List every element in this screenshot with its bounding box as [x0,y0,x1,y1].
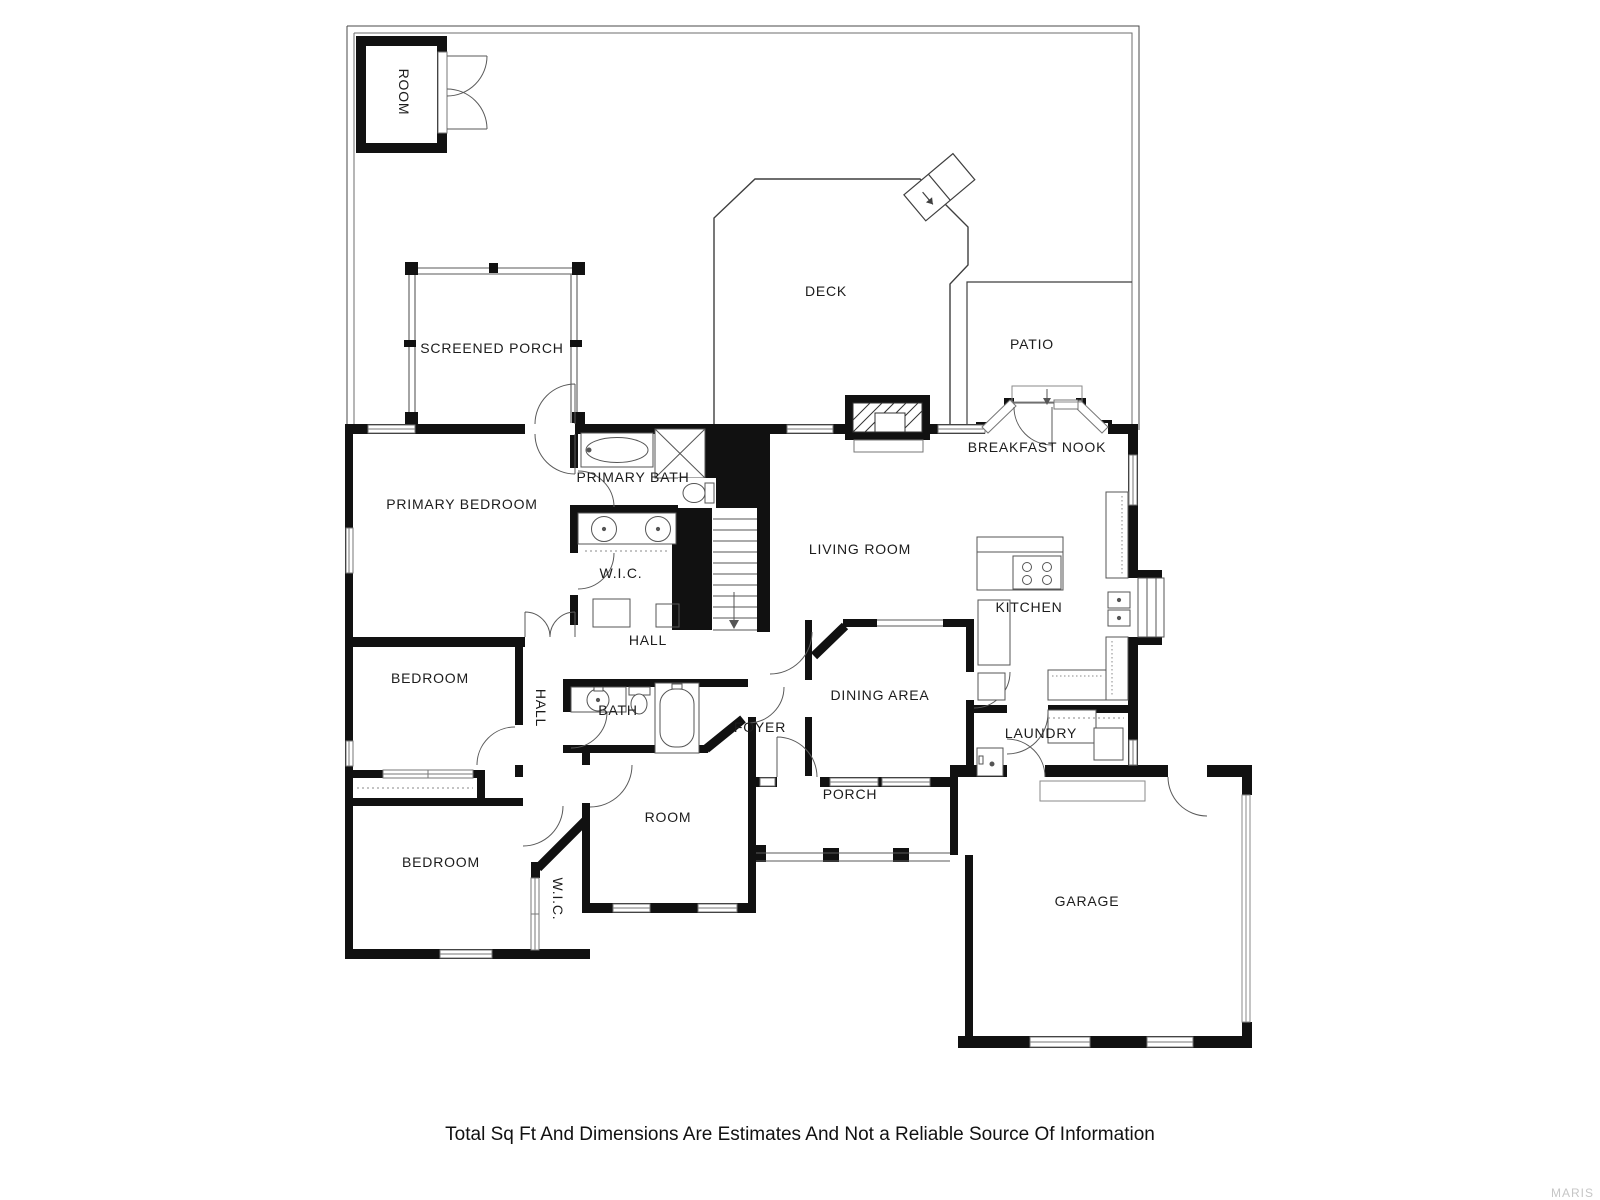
bedroom-mid-door [477,727,515,765]
label-living-room: LIVING ROOM [809,541,911,557]
label-bath: BATH [598,702,638,718]
porch-edge [756,853,950,861]
label-hall-upper: HALL [629,632,667,648]
label-dining-area: DINING AREA [830,687,929,703]
label-patio: PATIO [1010,336,1054,352]
dining-opening-header [877,620,943,626]
label-primary-bedroom: PRIMARY BEDROOM [386,496,538,512]
maris-watermark: MARIS [1551,1186,1594,1200]
staircase [713,519,757,630]
primary-double-door [525,612,575,637]
label-deck: DECK [805,283,847,299]
outbuilding-double-door [447,56,487,129]
outbuilding-room [356,36,487,153]
label-bedroom-mid: BEDROOM [391,670,469,686]
label-screened-porch: SCREENED PORCH [420,340,563,356]
label-room-outbuilding: ROOM [396,69,412,116]
deck-steps [904,154,975,221]
bedroom-lower-door [523,806,563,846]
label-kitchen: KITCHEN [995,599,1062,615]
label-wic-primary: W.I.C. [600,565,643,581]
fireplace [845,395,930,452]
label-room-lower: ROOM [645,809,692,825]
label-laundry: LAUNDRY [1005,725,1077,741]
label-porch: PORCH [823,786,878,802]
floor-plan-page: ROOM SCREENED PORCH DECK PATIO BREAKFAST… [0,0,1600,1200]
garage-entry-door [1168,777,1207,816]
label-hall-lower: HALL [533,689,549,727]
primary-wic-fixtures [585,551,679,627]
label-foyer: FOYER [734,719,786,735]
disclaimer-text: Total Sq Ft And Dimensions Are Estimates… [0,1124,1600,1146]
porch-door-arc [535,384,575,424]
label-breakfast-nook: BREAKFAST NOOK [968,439,1107,455]
label-bedroom-lower: BEDROOM [402,854,480,870]
lot-boundary [347,26,1139,430]
label-wic-lower: W.I.C. [550,878,566,921]
label-primary-bath: PRIMARY BATH [576,469,689,485]
label-garage: GARAGE [1055,893,1120,909]
floor-plan-drawing: ROOM SCREENED PORCH DECK PATIO BREAKFAST… [0,0,1600,1200]
room-lower-door [590,765,632,807]
